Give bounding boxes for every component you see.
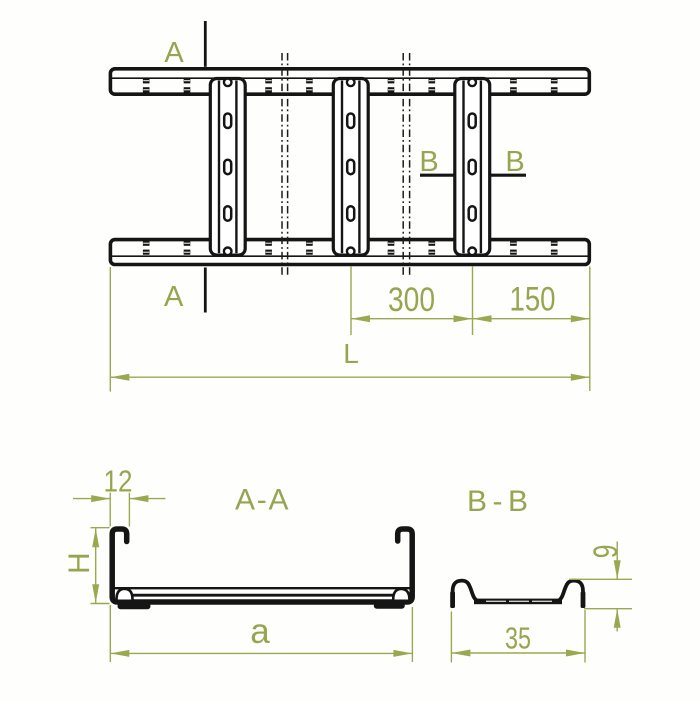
svg-text:B: B bbox=[419, 146, 438, 178]
svg-text:B: B bbox=[505, 146, 524, 178]
svg-text:35: 35 bbox=[505, 621, 531, 655]
svg-text:9: 9 bbox=[587, 545, 625, 559]
svg-text:B-B: B-B bbox=[467, 485, 528, 518]
svg-text:150: 150 bbox=[510, 281, 556, 319]
svg-text:A-A: A-A bbox=[235, 484, 289, 517]
svg-text:a: a bbox=[250, 612, 270, 651]
svg-text:A: A bbox=[164, 281, 184, 313]
svg-text:12: 12 bbox=[104, 465, 133, 499]
svg-text:A: A bbox=[164, 37, 184, 69]
svg-text:H: H bbox=[63, 552, 96, 574]
svg-text:L: L bbox=[343, 338, 359, 369]
svg-text:300: 300 bbox=[388, 281, 435, 319]
